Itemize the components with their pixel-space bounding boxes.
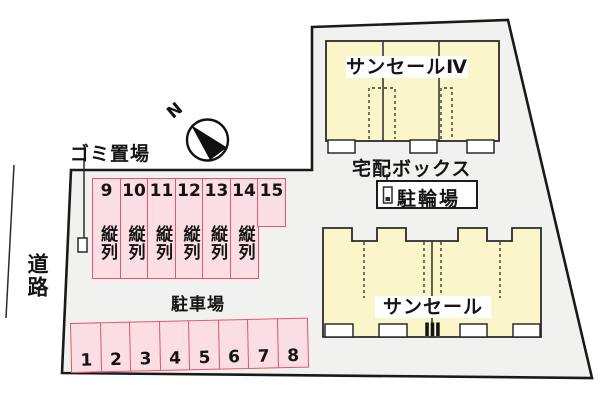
parking-space-number: 14: [231, 181, 258, 201]
garbage-area-label: ゴミ置場: [70, 139, 150, 166]
building-iii-porch: [325, 324, 353, 337]
bicycle-parking-label: 駐輪場: [397, 184, 460, 211]
parking-space-8: 8: [277, 318, 309, 369]
parking-space-1: 1: [70, 322, 102, 373]
parking-space-6: 6: [218, 319, 250, 370]
parking-space-13: 13 縦列: [202, 178, 231, 279]
tandem-label: 縦列: [126, 225, 143, 261]
delivery-box-icon-detail: [386, 197, 391, 201]
tandem-label: 縦列: [181, 225, 198, 261]
building-iv-porch: [328, 140, 355, 153]
garbage-box-icon: [78, 238, 87, 252]
parking-space-12: 12 縦列: [175, 178, 204, 279]
parking-space-number: 15: [258, 181, 285, 201]
parking-space-number: 9: [93, 181, 120, 201]
building-iv-name: サンセールⅣ: [346, 56, 468, 78]
building-iii-porch: [513, 324, 540, 337]
parking-space-10: 10 縦列: [120, 178, 149, 279]
tandem-label: 縦列: [98, 225, 115, 261]
parking-space-5: 5: [188, 320, 220, 371]
parking-space-7: 7: [247, 318, 279, 369]
parking-space-number: 12: [176, 181, 203, 201]
building-iii-name: サンセールⅢ: [375, 296, 491, 318]
tandem-label: 縦列: [153, 225, 170, 261]
road-label: 道路: [26, 253, 47, 299]
tandem-label: 縦列: [208, 225, 225, 261]
parking-space-number: 13: [203, 181, 230, 201]
parking-space-number: 10: [121, 181, 148, 201]
parking-space-9: 9 縦列: [92, 178, 121, 279]
parking-space-15: 15: [257, 178, 286, 227]
parking-space-2: 2: [100, 322, 132, 373]
road-edge-line: [6, 165, 14, 318]
site-plan: 9 縦列 10 縦列 11 縦列 12 縦列 13 縦列 14 縦列 15 1 …: [0, 0, 600, 400]
parking-space-11: 11 縦列: [147, 178, 176, 279]
parking-space-4: 4: [159, 320, 191, 371]
delivery-box-label: 宅配ボックス: [352, 154, 471, 181]
building-iii-porch: [379, 324, 407, 337]
parking-lot-label: 駐車場: [161, 290, 235, 315]
building-iii-porch: [460, 324, 487, 337]
building-iv-porch: [467, 140, 494, 153]
tandem-label: 縦列: [236, 225, 253, 261]
parking-space-3: 3: [129, 321, 161, 372]
building-iv-porch: [410, 140, 437, 153]
lower-parking-row: 1 2 3 4 5 6 7 8: [70, 318, 309, 373]
parking-space-14: 14 縦列: [230, 178, 259, 279]
parking-space-number: 11: [148, 181, 175, 201]
